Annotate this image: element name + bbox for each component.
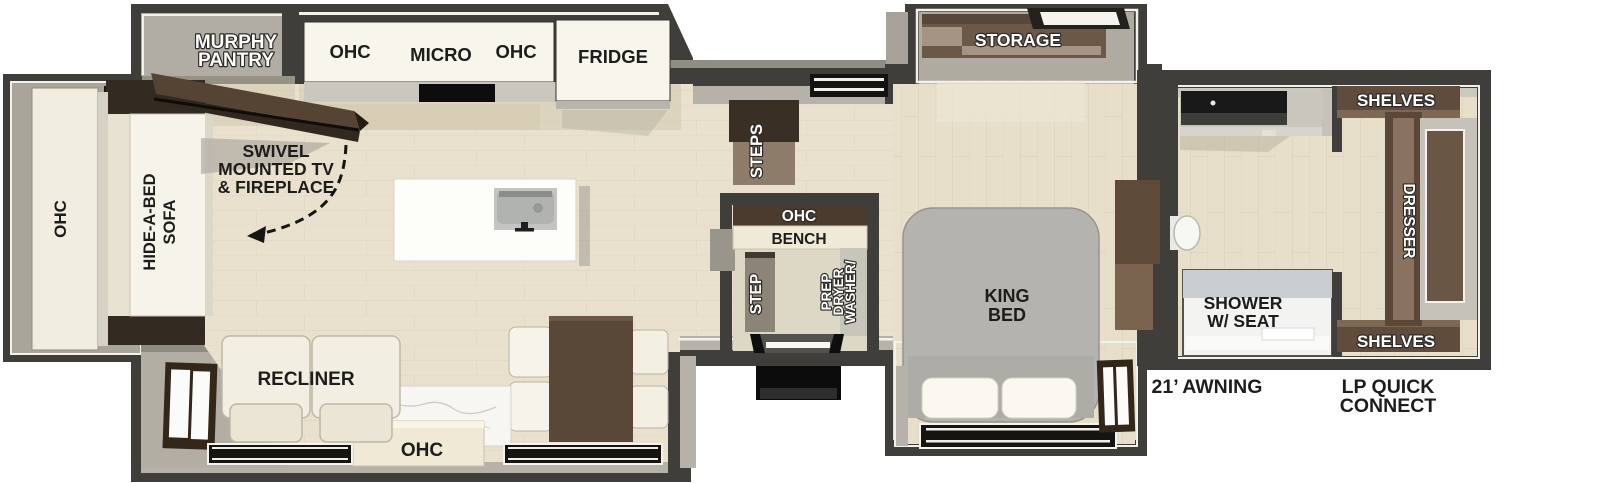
svg-text:HIDE-A-BED: HIDE-A-BED <box>141 173 159 270</box>
svg-text:& FIREPLACE: & FIREPLACE <box>218 177 335 197</box>
svg-text:SHELVES: SHELVES <box>1357 332 1435 351</box>
svg-text:W/ SEAT: W/ SEAT <box>1207 311 1279 331</box>
svg-text:OHC: OHC <box>495 41 536 62</box>
svg-text:BENCH: BENCH <box>771 231 826 248</box>
svg-text:SOFA: SOFA <box>161 199 179 244</box>
svg-text:SWIVEL: SWIVEL <box>242 141 309 161</box>
svg-text:RECLINER: RECLINER <box>257 369 354 390</box>
svg-text:SHELVES: SHELVES <box>1357 91 1435 110</box>
svg-text:PANTRY: PANTRY <box>198 50 274 71</box>
svg-text:FRIDGE: FRIDGE <box>578 46 648 67</box>
svg-text:OHC: OHC <box>329 41 370 62</box>
svg-text:21’ AWNING: 21’ AWNING <box>1152 376 1263 398</box>
svg-text:STEPS: STEPS <box>748 124 766 178</box>
svg-text:MOUNTED TV: MOUNTED TV <box>218 159 334 179</box>
svg-text:SHOWER: SHOWER <box>1204 293 1283 313</box>
svg-text:DRESSER: DRESSER <box>1400 184 1417 259</box>
svg-text:STORAGE: STORAGE <box>975 30 1061 50</box>
svg-text:PREP: PREP <box>819 274 834 311</box>
svg-text:CONNECT: CONNECT <box>1340 395 1437 417</box>
svg-text:OHC: OHC <box>401 440 444 461</box>
svg-text:OHC: OHC <box>51 200 70 238</box>
svg-text:BED: BED <box>988 305 1026 325</box>
svg-text:OHC: OHC <box>782 208 816 225</box>
svg-text:MICRO: MICRO <box>410 44 472 65</box>
svg-text:STEP: STEP <box>748 274 765 314</box>
svg-text:KING: KING <box>985 286 1030 306</box>
